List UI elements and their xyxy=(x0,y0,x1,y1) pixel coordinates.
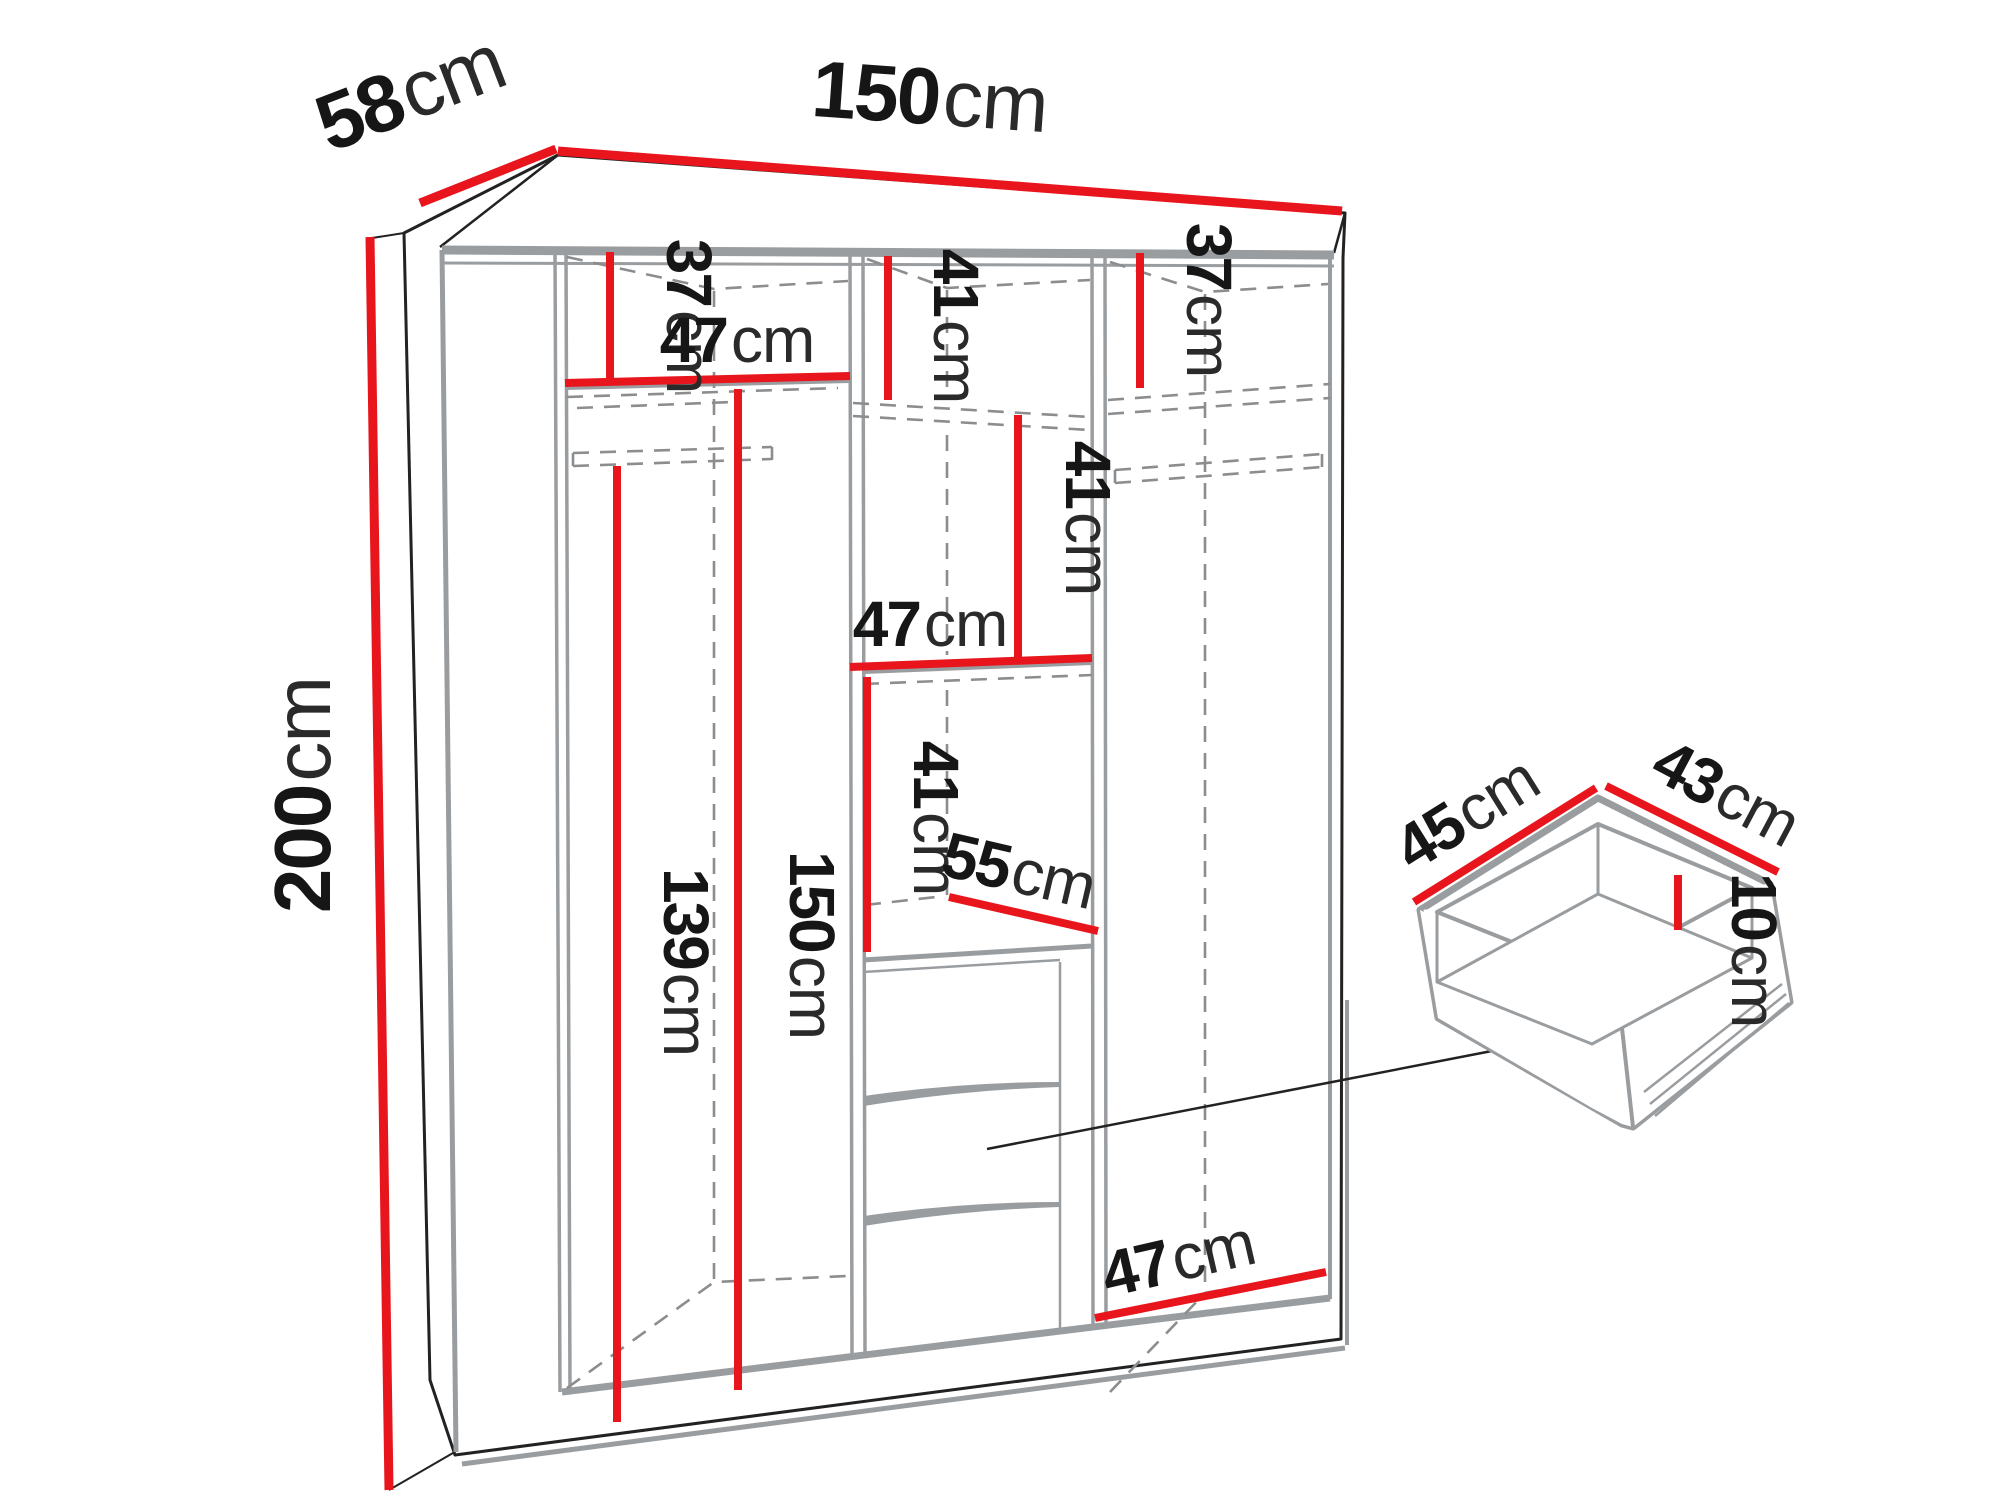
dim-label-interior-150: 150cm xyxy=(776,851,848,1039)
dim-label-mid-41-second: 41cm xyxy=(1052,441,1124,596)
dim-label-height-200: 200cm xyxy=(258,677,347,913)
diagram-canvas: 58cm 150cm 200cm 37cm 47cm 139cm 150cm 4… xyxy=(0,0,2000,1500)
dim-label-drawer-10: 10cm xyxy=(1718,873,1790,1028)
dim-label-mid-41-top: 41cm xyxy=(920,249,992,404)
dim-line-height-200 xyxy=(370,237,389,1490)
divider2-right-line xyxy=(1105,255,1106,1326)
divider1-left-line xyxy=(850,254,852,1357)
dim-label-right-37: 37cm xyxy=(1173,223,1245,378)
dim-label-left-shelf-47: 47cm xyxy=(660,304,815,376)
dim-label-mid-shelf-47: 47cm xyxy=(853,588,1008,660)
left-corner-tick-top xyxy=(372,233,404,238)
dim-label-depth-58: 58cm xyxy=(304,16,517,168)
dim-label-139: 139cm xyxy=(650,868,722,1056)
left-corner-tick-bottom xyxy=(389,1453,453,1490)
divider2-left-line xyxy=(1092,255,1093,1328)
wardrobe-dimension-diagram: 58cm 150cm 200cm 37cm 47cm 139cm 150cm 4… xyxy=(0,0,2000,1500)
dim-label-width-150: 150cm xyxy=(809,44,1051,149)
